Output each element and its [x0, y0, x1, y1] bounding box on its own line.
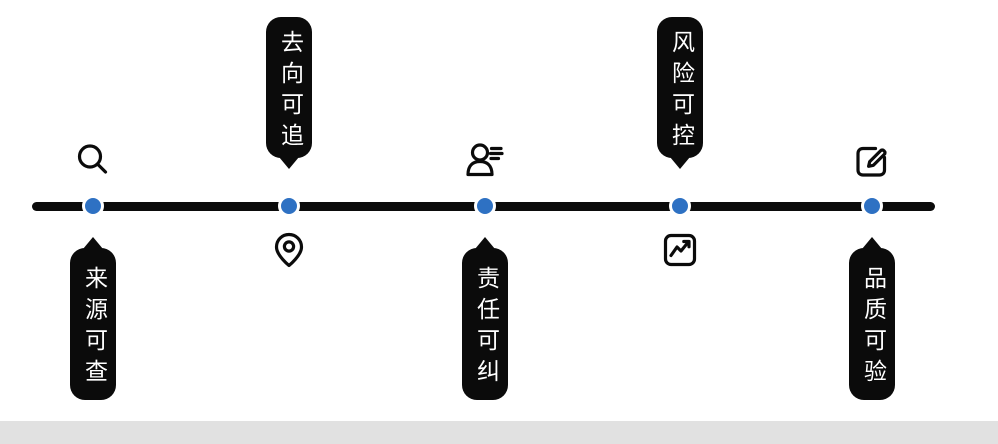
callout-source: 来源可查 — [70, 248, 116, 400]
timeline-dot — [669, 195, 691, 217]
timeline-dot — [861, 195, 883, 217]
callout-label: 品质可验 — [861, 266, 884, 390]
callout-arrow-down — [279, 157, 299, 169]
timeline-dot — [82, 195, 104, 217]
callout-arrow-up — [475, 237, 495, 249]
callout-label: 责任可纠 — [474, 266, 497, 390]
callout-label: 去向可追 — [278, 30, 301, 154]
callout-quality: 品质可验 — [849, 248, 895, 400]
person-list-icon — [464, 140, 506, 182]
callout-arrow-up — [862, 237, 882, 249]
footer-bar — [0, 421, 998, 444]
callout-label: 风险可控 — [669, 30, 692, 154]
chart-trend-icon — [659, 229, 701, 271]
callout-arrow-down — [670, 157, 690, 169]
callout-arrow-up — [83, 237, 103, 249]
search-icon — [72, 140, 114, 182]
callout-risk: 风险可控 — [657, 17, 703, 158]
callout-destination: 去向可追 — [266, 17, 312, 158]
callout-responsibility: 责任可纠 — [462, 248, 508, 400]
timeline-dot — [278, 195, 300, 217]
edit-icon — [851, 140, 893, 182]
callout-label: 来源可查 — [82, 266, 105, 390]
map-pin-icon — [268, 229, 310, 271]
timeline-dot — [474, 195, 496, 217]
timeline-diagram: 来源可查 去向可追 责任可 — [0, 0, 998, 444]
